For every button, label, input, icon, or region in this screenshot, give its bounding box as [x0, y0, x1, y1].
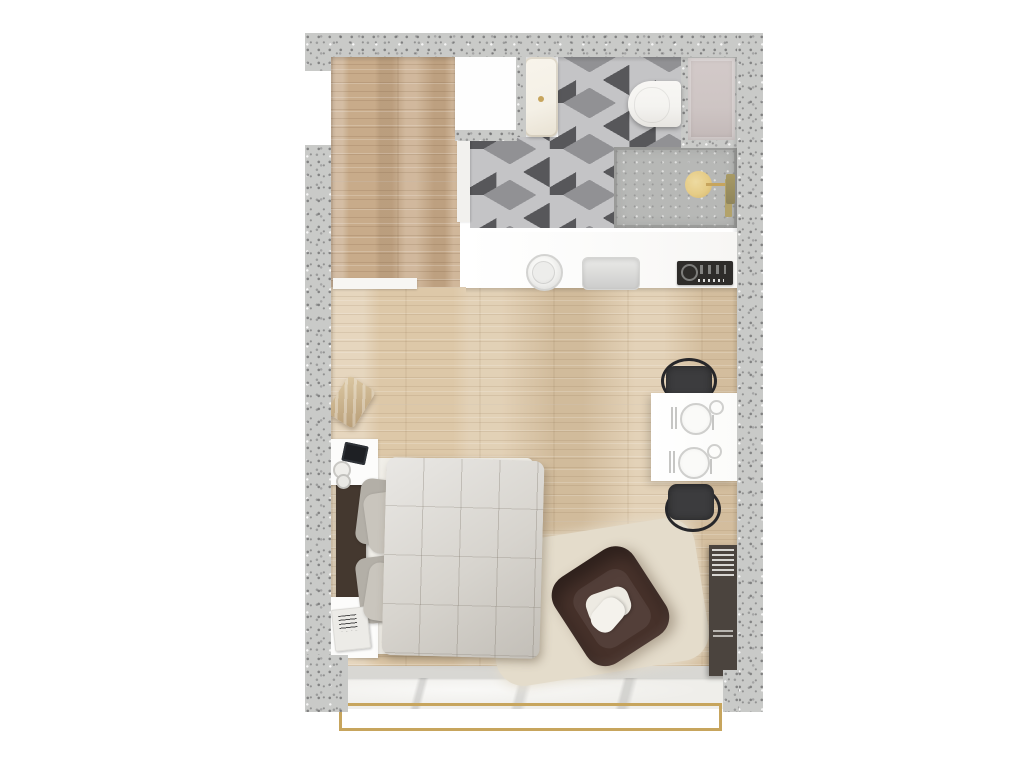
dining-chair-bottom [663, 480, 719, 528]
kitchen-sink-inner [532, 261, 555, 284]
fork-icon [669, 451, 671, 473]
bookshelf-books [712, 549, 734, 579]
knife-icon [673, 451, 675, 473]
plate-icon [678, 447, 710, 479]
threshold [333, 278, 417, 289]
magazine-text-lines [338, 614, 358, 632]
wall-left-upper [305, 33, 331, 71]
entrance-opening [305, 71, 331, 145]
cup [336, 474, 351, 489]
bookshelf-books [713, 630, 733, 640]
door-panel [688, 58, 735, 140]
wall-stub-closet [516, 55, 526, 137]
wall-left-main [305, 145, 331, 656]
fork-icon [671, 407, 673, 429]
cooktop-burner-icon [681, 264, 698, 281]
shower-valve-icon [726, 174, 735, 204]
plate-icon [680, 403, 712, 435]
chair-seat [668, 484, 714, 520]
knife-icon [675, 407, 677, 429]
bathroom-door [457, 140, 470, 222]
floor-plan-canvas [0, 0, 1024, 768]
spoon-icon [710, 459, 712, 474]
balcony-railing [339, 703, 722, 731]
wall-stub-below-closet [455, 130, 517, 141]
shower-tray [614, 147, 737, 228]
place-setting [669, 444, 729, 480]
apartment-plan [0, 0, 1024, 768]
cup-icon [707, 444, 722, 459]
cooktop-knob-dots [698, 279, 724, 282]
kitchen-basin [582, 257, 640, 290]
closet [455, 53, 517, 132]
cooktop-controls [700, 265, 726, 274]
wall-left-balcony [305, 655, 348, 712]
spoon-icon [712, 415, 714, 430]
wall-top [305, 33, 763, 57]
bed-duvet [381, 457, 544, 659]
bathtub-drain [538, 96, 544, 102]
place-setting [671, 400, 731, 436]
hallway-floor [331, 55, 460, 288]
wall-right-balcony [723, 670, 739, 712]
wall-right [737, 33, 763, 712]
toilet-seat-line [634, 87, 670, 123]
cup-icon [709, 400, 724, 415]
